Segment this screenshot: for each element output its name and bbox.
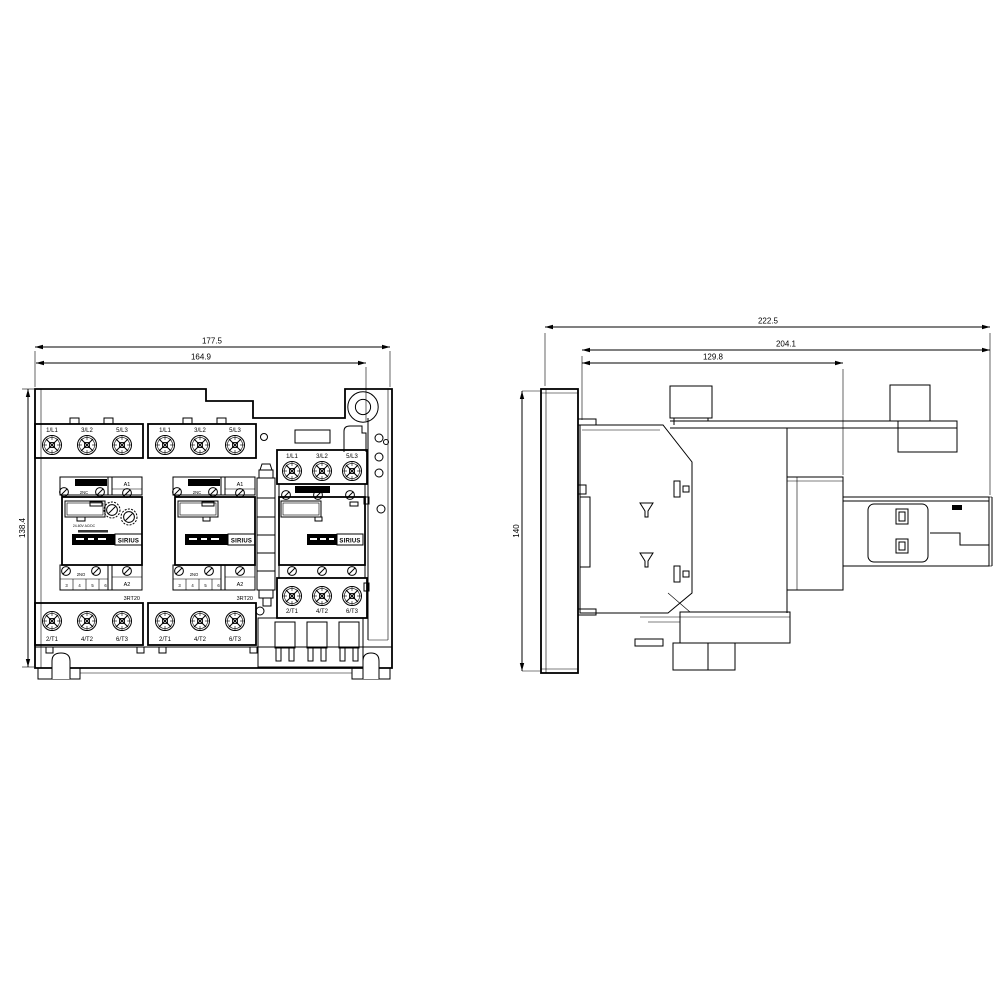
dim-side-height-label: 140 (512, 524, 521, 538)
mounting-foot-left (38, 653, 80, 679)
aux-terminal-number: 6 (104, 583, 107, 588)
front-view: 177.5 164.9 138.4 (18, 337, 392, 680)
terminal-label: 6/T3 (116, 637, 129, 643)
brand-label: SIRIUS (118, 539, 139, 545)
coil-voltage-label: 24-60V AC/DC (73, 524, 96, 528)
function-module-plug (843, 497, 992, 566)
coil-terminal-label: A2 (237, 582, 244, 588)
dimension-side-height: 140 (512, 391, 540, 671)
aux-terminal-number: 6 (217, 583, 220, 588)
label-window (281, 501, 321, 517)
box-terminal-prongs (275, 622, 359, 661)
order-number-plate (185, 534, 228, 545)
dim-front-hole-width-label: 164.9 (191, 353, 212, 362)
terminal-label: 4/T2 (194, 637, 207, 643)
terminal-label: 3/L2 (81, 428, 93, 434)
aux-terminal-number: 5 (204, 583, 207, 588)
dimension-side-total-depth: 222.5 (545, 317, 990, 496)
terminal-label: 2/T1 (46, 637, 59, 643)
terminal-label: 5/L3 (116, 428, 128, 434)
plate-hole (375, 453, 383, 461)
terminal-label: 3/L2 (194, 428, 206, 434)
dim-side-body-depth-label: 129.8 (703, 353, 724, 362)
top-rail-side (670, 385, 957, 452)
label-window (178, 501, 218, 517)
brand-label: SIRIUS (231, 539, 252, 545)
fine-print (78, 530, 108, 533)
mounting-plate-side (541, 389, 578, 673)
terminal-label: 4/T2 (81, 637, 94, 643)
dimension-side-depth-204: 204.1 (582, 340, 990, 421)
contactor-assembly-drawing: 177.5 164.9 138.4 (0, 0, 1000, 1000)
side-view: 222.5 204.1 129.8 140 (512, 317, 992, 674)
mounting-hole (348, 392, 378, 422)
aux-contact-label: 2NC (193, 490, 201, 495)
aux-contact-label: 2NC (80, 490, 88, 495)
release-lever-icon (640, 503, 653, 517)
terminal-label: 1/L1 (159, 428, 171, 434)
contactor-middle: 1/L1 3/L2 5/L3 A1 2NC SIRIUS (148, 418, 256, 645)
dim-side-total-depth-label: 222.5 (758, 317, 779, 326)
label-window (65, 501, 105, 517)
dim-front-total-width-label: 177.5 (202, 337, 223, 346)
aux-terminal-number: 4 (78, 583, 81, 588)
type-label: 3RT20 (237, 596, 253, 602)
terminal-label: 6/T3 (229, 637, 242, 643)
part-number-plate (295, 486, 330, 493)
aux-contact-label: 2NO (77, 572, 86, 577)
plate-hole (377, 505, 385, 513)
wiring-link-bar (256, 464, 275, 615)
fixing-slot-right (363, 653, 379, 679)
release-lever-icon (640, 553, 653, 567)
technical-drawing-page: 177.5 164.9 138.4 (0, 0, 1000, 1000)
dim-side-depth-204-label: 204.1 (776, 340, 797, 349)
terminal-label: 1/L1 (286, 454, 298, 460)
din-rail-hook (635, 639, 663, 646)
coil-terminal-label: A2 (124, 582, 131, 588)
contactor-body-side (578, 386, 712, 615)
order-number-plate (72, 534, 115, 545)
terminal-label: 4/T2 (316, 609, 329, 615)
aux-terminal-number: 3 (65, 583, 68, 588)
coil-terminal-label: A1 (124, 482, 131, 488)
aux-contact-label: 2NO (190, 572, 199, 577)
dim-front-height-label: 138.4 (18, 517, 27, 538)
dimension-front-hole-width: 164.9 (36, 353, 366, 422)
dimension-front-total-width: 177.5 (35, 337, 390, 388)
aux-terminal-number: 3 (178, 583, 181, 588)
aux-terminal-number: 4 (191, 583, 194, 588)
terminal-label: 2/T1 (286, 609, 299, 615)
aux-block-top (890, 385, 930, 421)
terminal-label: 3/L2 (316, 454, 328, 460)
brand-label: SIRIUS (339, 539, 360, 545)
plate-hole (375, 469, 383, 477)
side-module-column (787, 428, 843, 613)
order-number-plate (307, 534, 337, 545)
type-label: 3RT20 (124, 596, 140, 602)
contactor-left: 1/L1 3/L2 5/L3 A1 2NC 24-60V AC/DC (35, 418, 143, 645)
top-clip (344, 426, 366, 452)
coil-terminal-label: A1 (237, 482, 244, 488)
terminal-label: 2/T1 (159, 637, 172, 643)
dimension-front-height: 138.4 (18, 389, 34, 667)
plate-hole (375, 434, 383, 442)
terminal-label: 5/L3 (346, 454, 358, 460)
top-terminal-block-side (670, 386, 712, 418)
terminal-label: 6/T3 (346, 609, 359, 615)
bottom-rail-side (635, 612, 790, 670)
contactor-right: 1/L1 3/L2 5/L3 SIRIUS 2/T1 (258, 426, 367, 667)
terminal-label: 1/L1 (46, 428, 58, 434)
fixing-slot-left (52, 653, 70, 679)
terminal-label: 5/L3 (229, 428, 241, 434)
part-number-plate (75, 479, 107, 486)
aux-terminal-number: 5 (91, 583, 94, 588)
part-number-plate (188, 479, 220, 486)
marking-dash (952, 505, 962, 510)
